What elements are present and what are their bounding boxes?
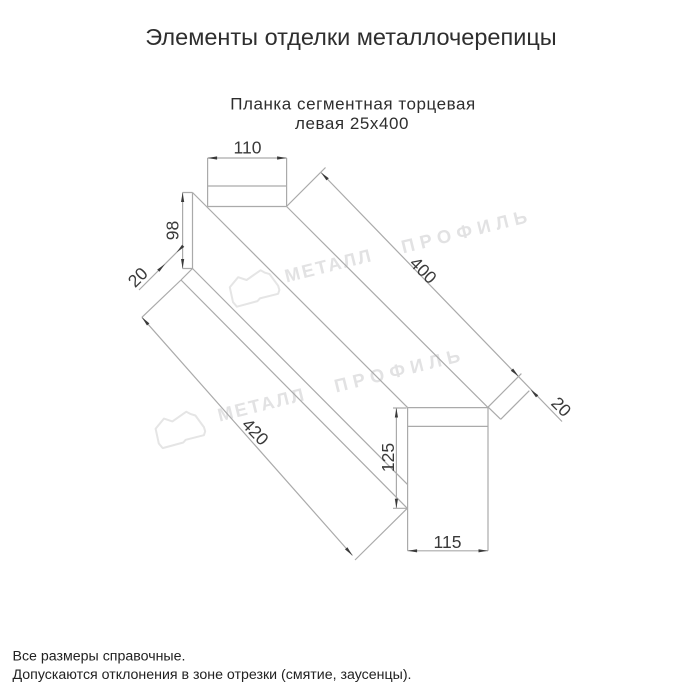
svg-text:115: 115 [434, 532, 462, 552]
svg-text:левая 25х400: левая 25х400 [295, 114, 409, 133]
svg-text:МЕТАЛЛПРОФИЛЬ: МЕТАЛЛПРОФИЛЬ [282, 204, 534, 286]
svg-text:125: 125 [378, 443, 398, 472]
svg-text:Все размеры справочные.: Все размеры справочные. [13, 649, 186, 665]
svg-text:20: 20 [547, 393, 575, 421]
svg-text:МЕТАЛЛПРОФИЛЬ: МЕТАЛЛПРОФИЛЬ [215, 343, 467, 425]
svg-text:400: 400 [406, 253, 441, 288]
svg-text:110: 110 [234, 138, 262, 158]
svg-text:Допускаются отклонения в зоне: Допускаются отклонения в зоне отрезки (с… [13, 667, 412, 683]
svg-text:98: 98 [163, 221, 183, 240]
svg-text:20: 20 [124, 263, 152, 291]
svg-text:Планка сегментная торцевая: Планка сегментная торцевая [230, 95, 476, 114]
svg-text:Элементы отделки металлочерепи: Элементы отделки металлочерепицы [145, 24, 556, 50]
